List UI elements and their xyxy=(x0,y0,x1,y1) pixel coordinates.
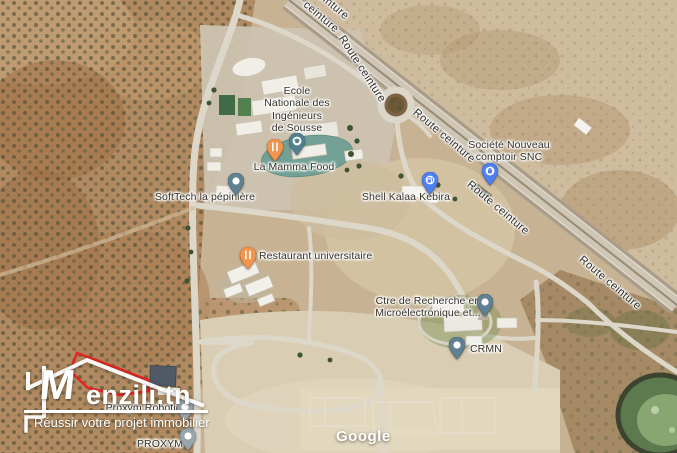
marker-softtech[interactable] xyxy=(228,173,244,195)
place-pin-icon xyxy=(449,337,465,359)
marker-la-mamma-food[interactable] xyxy=(267,139,283,161)
school-pin-icon xyxy=(289,133,305,155)
place-pin-icon xyxy=(177,399,193,421)
marker-ctre-recherche[interactable] xyxy=(477,294,493,316)
poi-label-snc[interactable]: Société Nouveau comptoir SNC xyxy=(459,139,559,164)
marker-shell-kalaa-kebira[interactable] xyxy=(422,172,438,194)
reservoir-pond xyxy=(618,375,677,453)
marker-crmn[interactable] xyxy=(449,337,465,359)
marker-proxym-robotics[interactable] xyxy=(177,399,193,421)
restaurant-pin-icon xyxy=(267,139,283,161)
shopping-pin-icon xyxy=(482,163,498,185)
poi-label-proxym[interactable]: PROXYM xyxy=(137,438,183,450)
satellite-imagery xyxy=(0,0,677,453)
map-canvas[interactable]: ceinture ceinture Route ceinture Route c… xyxy=(0,0,677,453)
marker-proxym[interactable] xyxy=(180,428,196,450)
google-logo[interactable]: Google xyxy=(336,428,391,445)
place-pin-icon xyxy=(180,428,196,450)
place-pin-icon xyxy=(477,294,493,316)
place-pin-icon xyxy=(228,173,244,195)
restaurant-pin-icon xyxy=(240,247,256,269)
poi-label-ctre-recherche[interactable]: Ctre de Recherche en Microélectronique e… xyxy=(368,295,488,320)
poi-label-restaurant-universitaire[interactable]: Restaurant universitaire xyxy=(259,250,372,262)
gas-station-pin-icon xyxy=(422,172,438,194)
marker-snc[interactable] xyxy=(482,163,498,185)
poi-label-enis[interactable]: Ecole Nationale des Ingénieurs de Sousse xyxy=(252,85,342,135)
poi-label-crmn[interactable]: CRMN xyxy=(470,343,502,355)
marker-restaurant-universitaire[interactable] xyxy=(240,247,256,269)
marker-enis[interactable] xyxy=(289,133,305,155)
poi-label-la-mamma-food[interactable]: La Mamma Food xyxy=(254,161,335,173)
poi-label-proxym-robotics[interactable]: Proxym Robotics xyxy=(106,402,187,414)
